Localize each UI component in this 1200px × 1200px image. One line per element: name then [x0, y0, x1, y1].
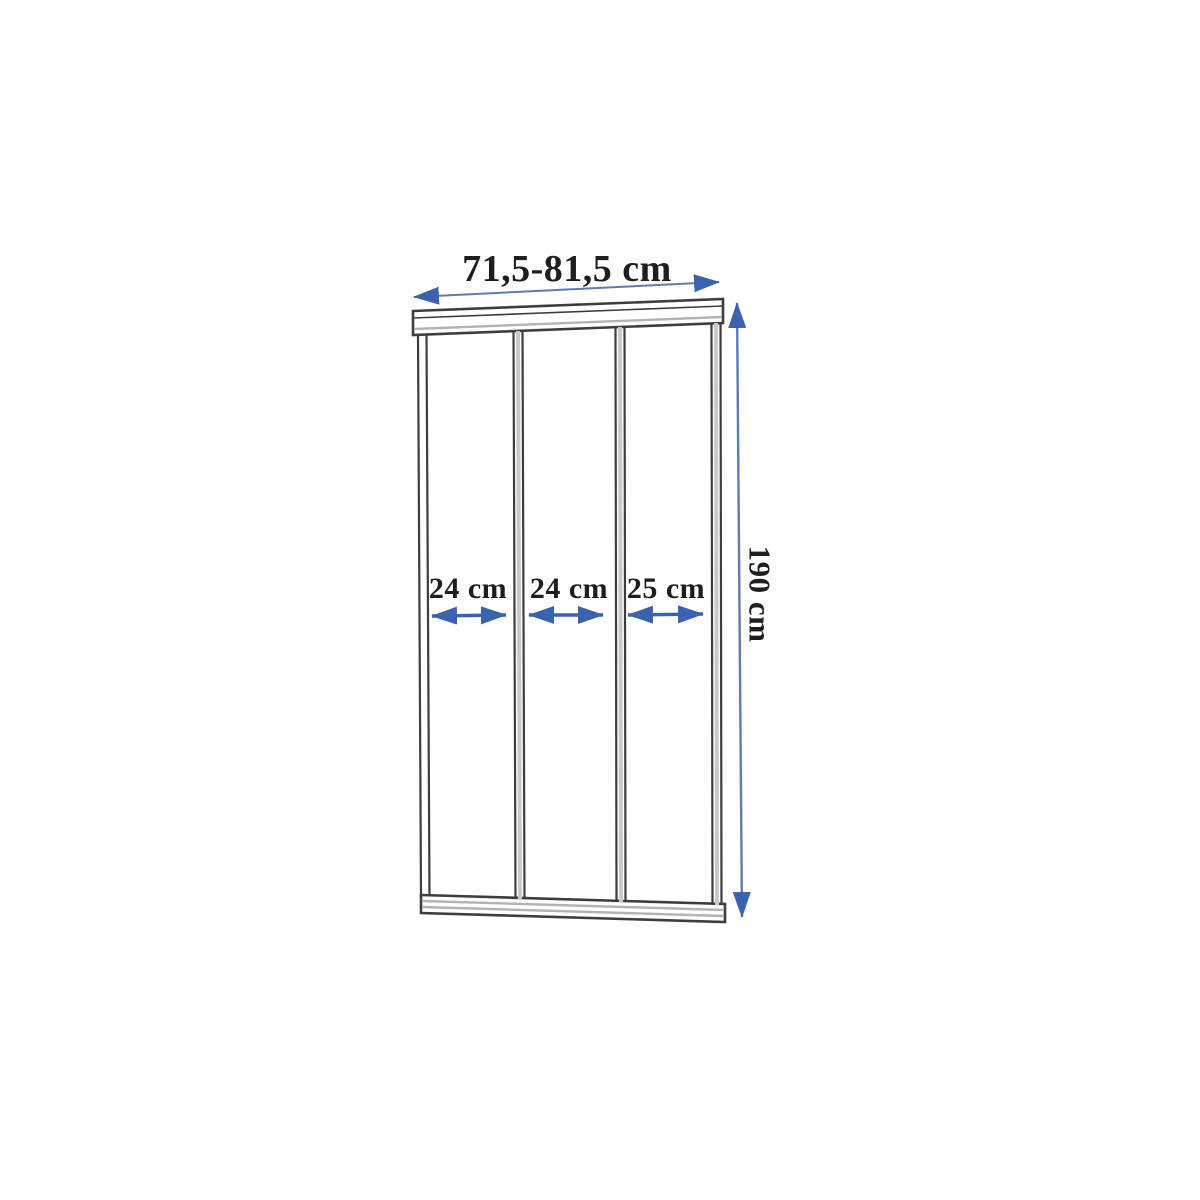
mullion-2-left-line [616, 327, 617, 902]
mullion-1-left-line [514, 331, 516, 899]
left-stile-outer-line [418, 335, 421, 896]
mullion-2 [616, 327, 626, 902]
left-stile [418, 335, 430, 896]
panel-3-dimension-arrow [628, 614, 703, 615]
mullion-2-fill [620, 327, 621, 902]
mullion-1-fill [518, 331, 520, 899]
right-stile [712, 323, 722, 905]
width-dimension-label: 71,5-81,5 cm [416, 250, 718, 288]
mullion-2-right-line [625, 327, 626, 902]
panel-3-dimension-label: 25 cm [616, 574, 716, 604]
header-rail [413, 299, 723, 335]
left-stile-inner-line [427, 335, 430, 896]
right-stile-fill [716, 323, 717, 905]
mullion-1 [514, 331, 525, 899]
panel-1-dimension-label: 24 cm [418, 574, 518, 604]
panel-2-dimension-label: 24 cm [519, 574, 619, 604]
mullion-1-right-line [523, 331, 525, 899]
height-dimension-arrow [737, 303, 742, 917]
panel-1-dimension-arrow [432, 615, 506, 616]
right-stile-inner-line [721, 323, 722, 905]
right-stile-outer-line [712, 323, 713, 905]
height-dimension-label: 190 cm [745, 546, 776, 643]
diagram-canvas: 71,5-81,5 cm 24 cm 24 cm 25 cm 190 cm [0, 0, 1200, 1200]
bottom-rail [421, 895, 725, 922]
